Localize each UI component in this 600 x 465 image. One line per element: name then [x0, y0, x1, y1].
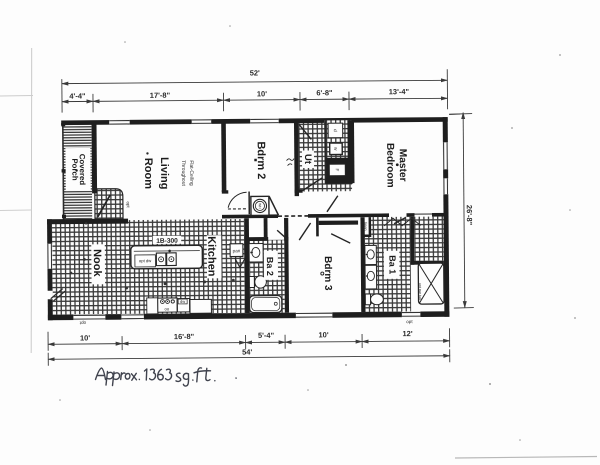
- svg-text:16'-8": 16'-8": [174, 332, 195, 341]
- svg-text:26'-8": 26'-8": [465, 205, 474, 226]
- svg-text:oo: oo: [164, 306, 169, 311]
- svg-text:pan: pan: [233, 248, 241, 253]
- svg-text:Kitchen: Kitchen: [205, 236, 217, 277]
- svg-text:F: F: [335, 169, 340, 172]
- svg-text:1B-300: 1B-300: [156, 238, 178, 245]
- svg-text:Flat-Ceiling: Flat-Ceiling: [188, 160, 194, 186]
- svg-text:opt gar tub: opt gar tub: [418, 283, 422, 300]
- svg-text:13'-4": 13'-4": [389, 87, 410, 96]
- svg-text:Ba 2: Ba 2: [265, 257, 275, 276]
- svg-text:54': 54': [242, 347, 252, 356]
- svg-text:WH: WH: [258, 203, 262, 209]
- svg-text:Ba 1: Ba 1: [387, 255, 397, 274]
- svg-text:opt dw: opt dw: [139, 258, 152, 263]
- svg-text:Bedroom: Bedroom: [384, 143, 395, 188]
- svg-text:10': 10': [80, 333, 90, 342]
- svg-text:opt: opt: [79, 320, 86, 325]
- svg-text:17'-8": 17'-8": [150, 91, 171, 100]
- svg-text:Room: Room: [142, 158, 154, 189]
- svg-text:dw: dw: [180, 299, 185, 304]
- svg-text:5'-4": 5'-4": [258, 331, 275, 340]
- svg-text:4'-4": 4'-4": [69, 91, 86, 100]
- svg-text:opt: opt: [126, 201, 131, 208]
- svg-text:10': 10': [318, 330, 328, 339]
- svg-text:Nook: Nook: [91, 249, 103, 277]
- svg-text:10': 10': [257, 89, 267, 98]
- svg-text:linen: linen: [363, 222, 368, 230]
- svg-text:Throughout: Throughout: [180, 160, 186, 186]
- svg-text:12': 12': [402, 329, 412, 338]
- svg-text:opt: opt: [406, 319, 413, 324]
- svg-text:Living: Living: [158, 157, 170, 189]
- svg-text:Ut: Ut: [302, 154, 313, 165]
- svg-text:6'-8": 6'-8": [316, 88, 333, 97]
- svg-text:Porch: Porch: [70, 158, 79, 180]
- svg-text:52': 52': [250, 68, 260, 77]
